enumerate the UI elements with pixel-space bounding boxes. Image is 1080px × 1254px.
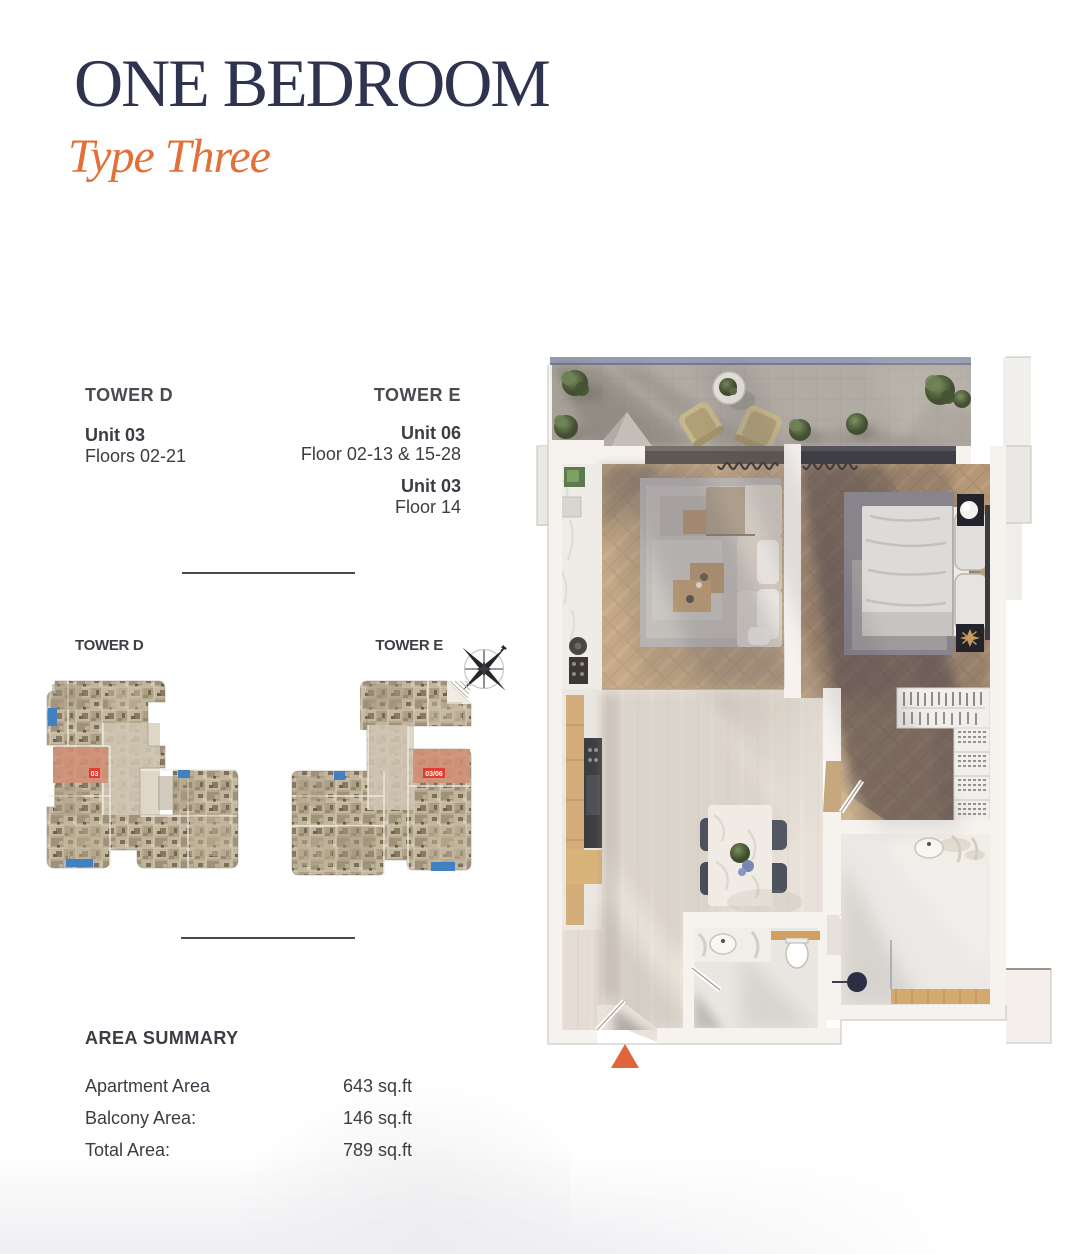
svg-text:03: 03 [91,771,99,778]
svg-text:03/06: 03/06 [425,771,443,778]
